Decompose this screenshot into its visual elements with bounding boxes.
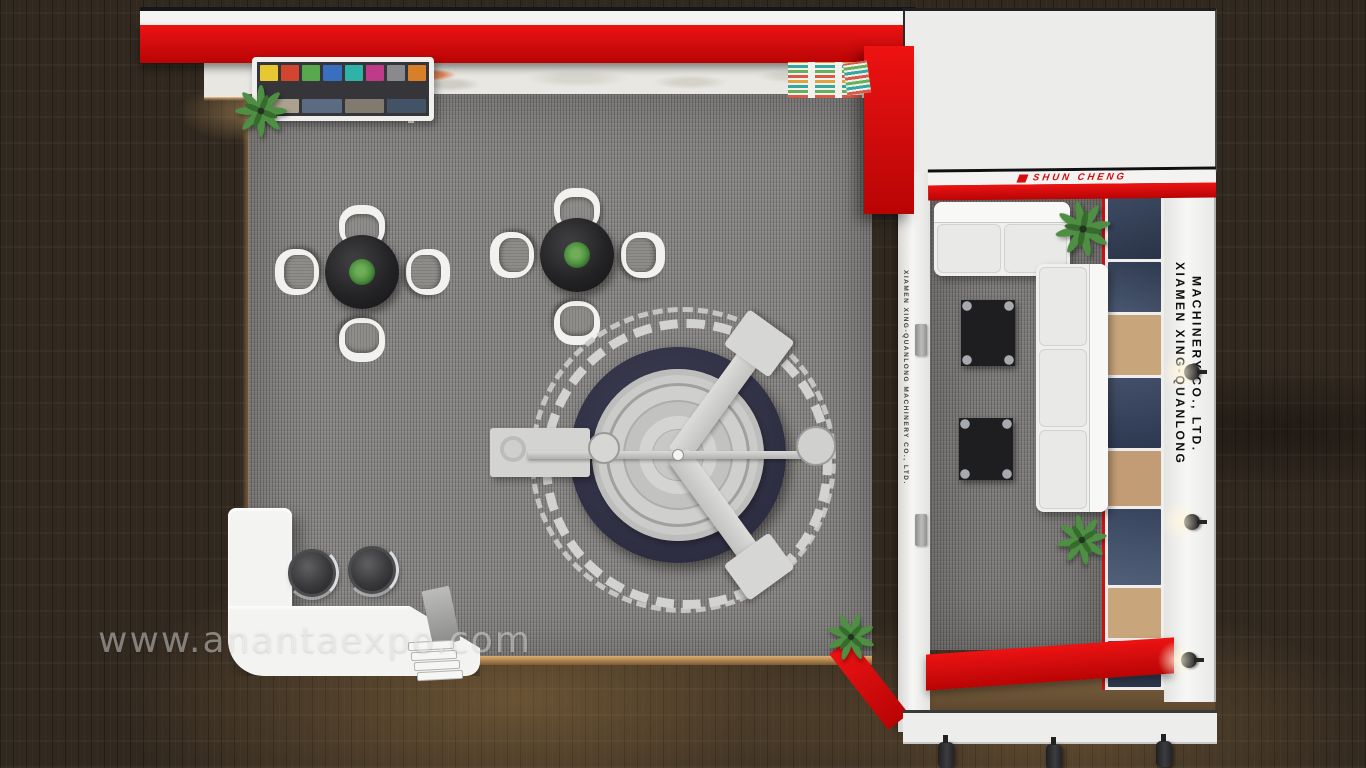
wall-fixture [915,514,927,546]
bar-stool [348,546,396,594]
machine-center-pin [672,449,684,461]
machine-hub-right [796,426,836,466]
magazine-rack-tray [417,670,463,681]
right-room-roof-panel [903,8,1217,172]
fascia-signage-strip: SHUN CHENG [928,166,1216,200]
watermark-text: www.anantaexpo.com [98,620,532,661]
floor-spotlight [1156,741,1172,767]
wall-fixture [915,324,927,356]
company-name-text: XIAMEN XING-QUANLONG MACHINERY CO., LTD. [1171,262,1205,662]
booth-render: XIAMEN XING-QUANLONG MACHINERY CO., LTD.… [0,0,1366,768]
reception-counter-vertical [228,508,292,612]
machine-hub-left [588,432,620,464]
chair [275,249,319,295]
plant [234,84,288,138]
floor-spotlight [1046,744,1062,768]
floor-spotlight [938,742,954,768]
company-name-line2: MACHINERY CO., LTD. [1188,276,1205,662]
coffee-table [961,300,1015,366]
wall-spotlight [1184,364,1200,380]
company-name-line1: XIAMEN XING-QUANLONG [1171,262,1188,662]
chair [339,318,385,362]
fascia-brand-text: SHUN CHENG [1032,171,1128,183]
divider-wall-company-text: XIAMEN XING-QUANLONG MACHINERY CO., LTD. [902,270,909,620]
table-plant [349,259,375,285]
rack-brochures [260,65,426,81]
cabinet-color-chips [843,60,871,95]
meeting-table [325,235,399,309]
chair [621,232,665,278]
sofa-cushions [1039,267,1087,509]
photo-graphic-wall [1102,192,1164,690]
fascia-red-band [928,182,1216,200]
plant [1049,195,1118,264]
wall-spotlight [1181,652,1197,668]
table-plant [564,242,590,268]
chair [406,249,450,295]
coffee-table [959,418,1013,480]
bar-stool [288,549,336,597]
machine-exhibit [528,305,828,605]
sofa-backrest [1089,264,1108,512]
wall-spotlight [1184,514,1200,530]
sofa-three-seat [1036,264,1108,512]
chair [490,232,534,278]
right-outer-wall: XIAMEN XING-QUANLONG MACHINERY CO., LTD. [1164,170,1216,702]
shuncheng-logo-icon [1016,174,1028,182]
red-column-cabinet [864,46,914,214]
meeting-table [540,218,614,292]
bottom-white-band [903,710,1217,744]
machine-block-hole [500,436,526,462]
